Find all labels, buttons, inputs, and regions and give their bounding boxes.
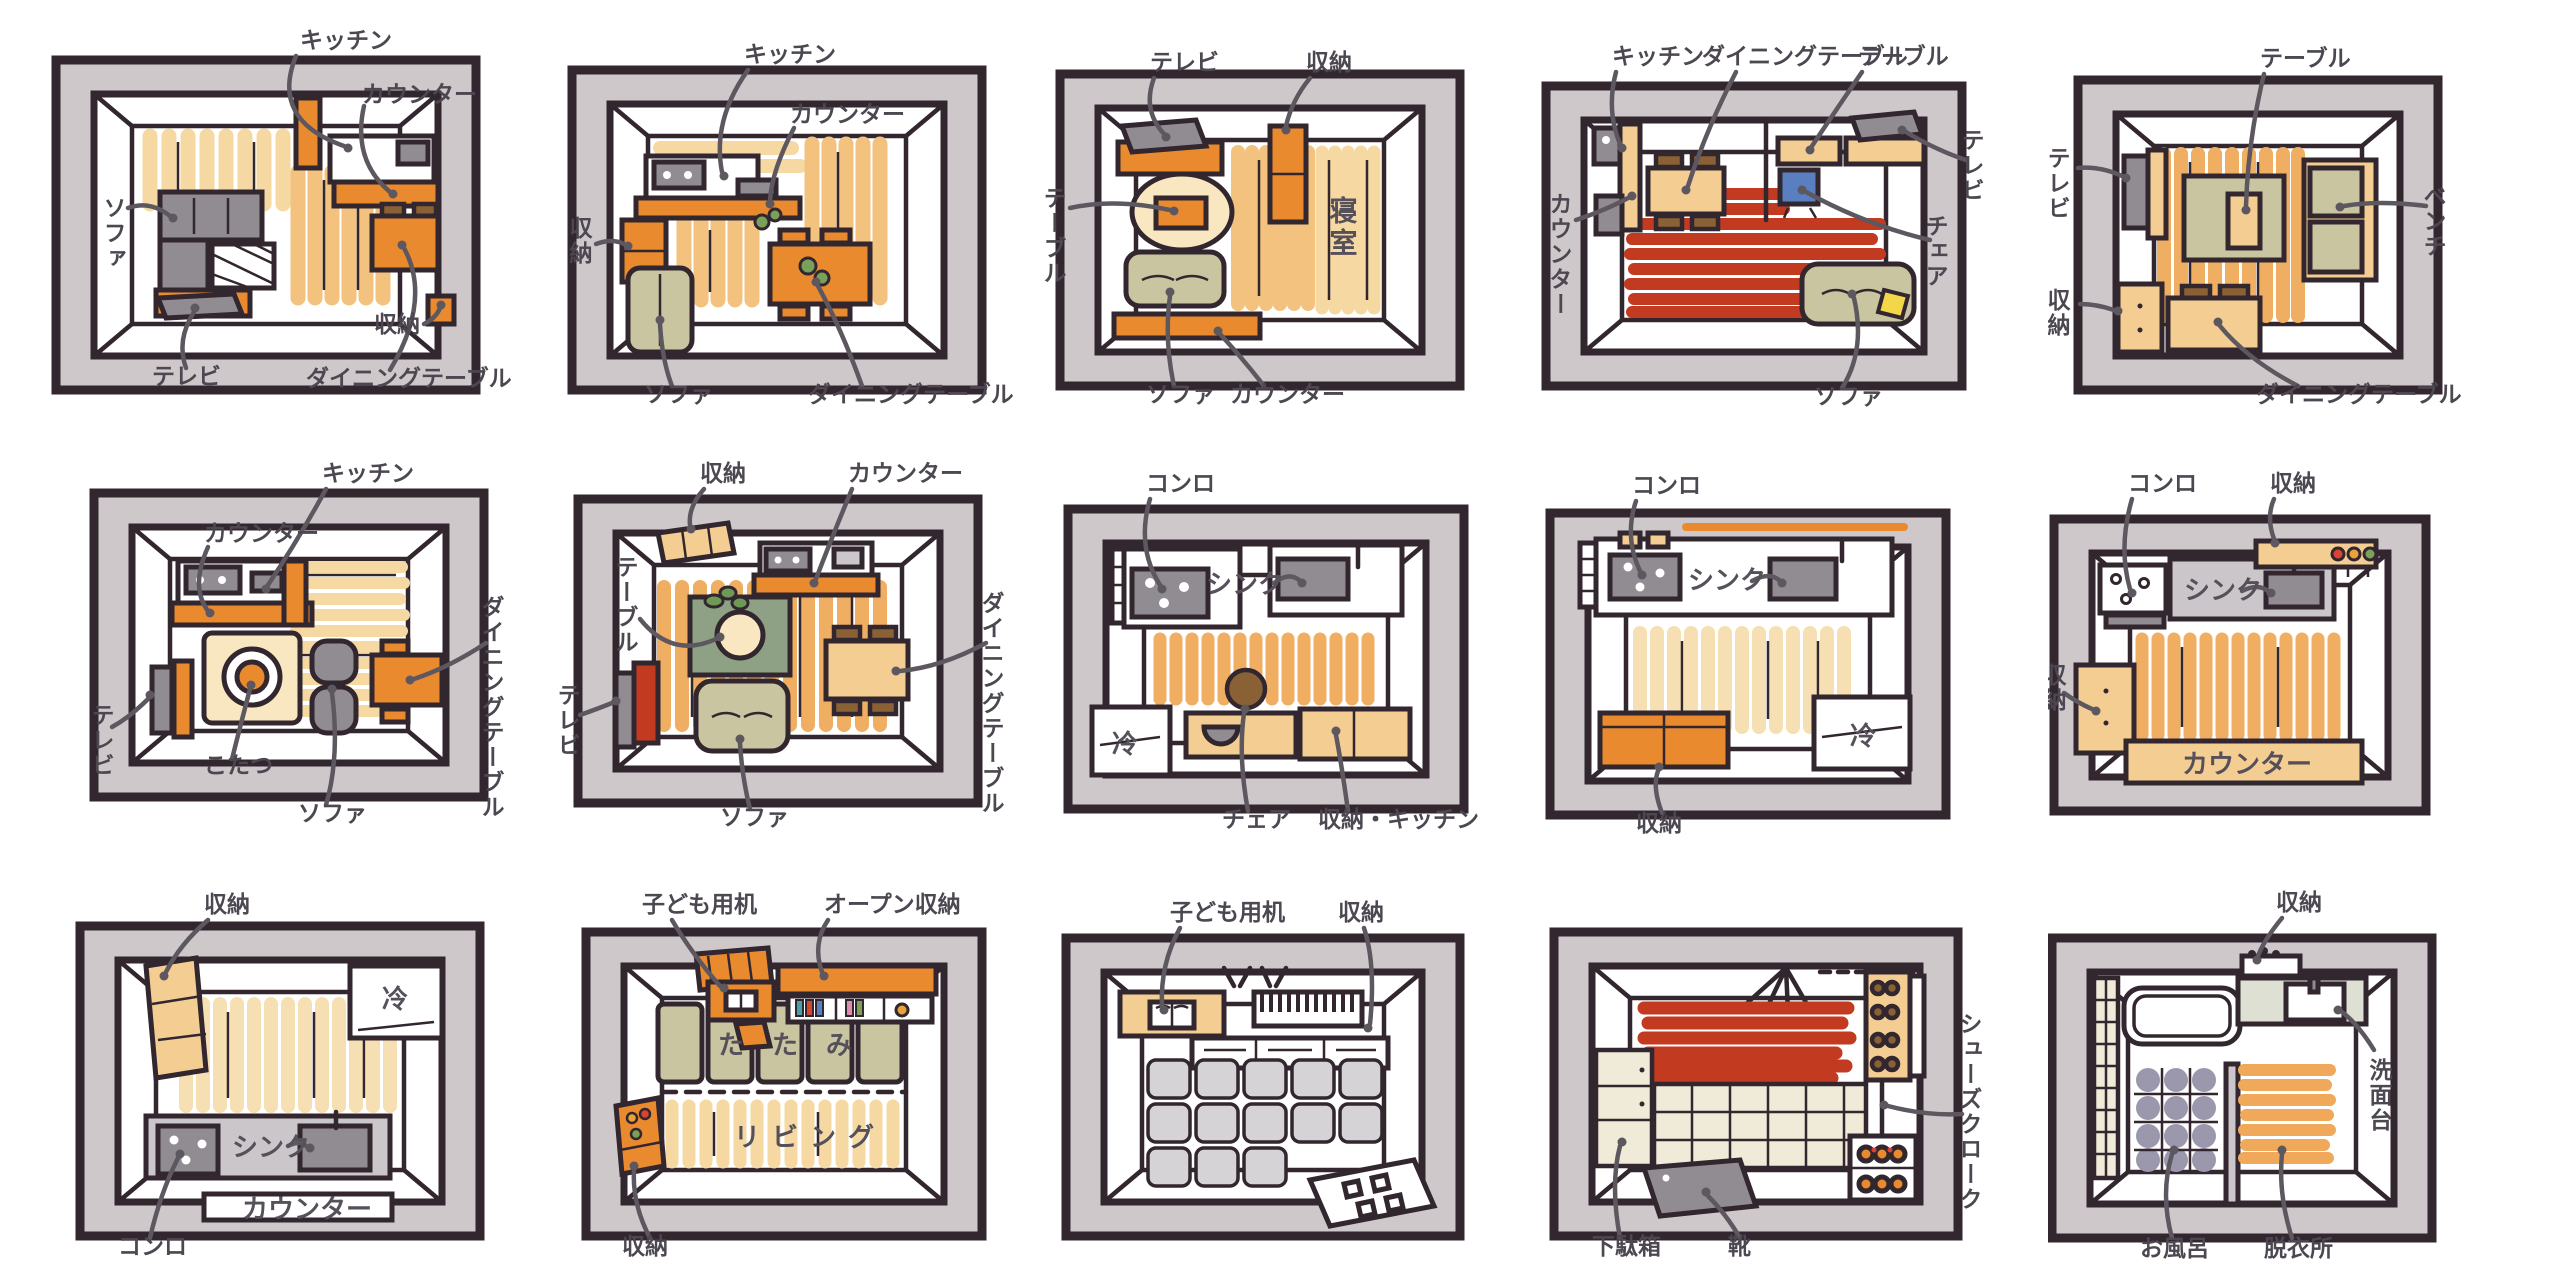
floorplan-panel-7: 収納 カウンター テーブル テレビ ソファ ダイニングテーブル [512,427,1024,854]
floorplan-illustration: キッチン カウンター ソファ テレビ 収納 ダイニングテーブル [0,0,2560,1280]
panel-kotatsu-living: キッチン カウンター テレビ こたつ ソファ ダイニングテーブル [0,427,512,854]
label-dining-table: ダイニングテーブル [808,381,1014,408]
label-storage: 収納 [700,460,746,487]
label-tv: テレビ [553,683,579,758]
label-chair: チェア [1222,807,1291,833]
panel-kids-tatami-living: 子ども用机 オープン収納 たたみ リビング 収納 [512,854,1024,1280]
label-kids-desk: 子ども用机 [1170,900,1285,926]
rug [212,244,274,288]
label-sink: シンク [232,1133,310,1163]
label-dining-table: ダイニングテーブル [977,591,1004,816]
panel-kids-playroom: 子ども用机 収納 [1024,854,1536,1280]
panel-bedroom-living: テレビ 収納 テーブル 寝室 ソファ カウンター [1024,0,1536,427]
label-storage: 収納 [2048,288,2071,338]
kitchen-counter [754,543,878,595]
floorplan-panel-9: コンロ シンク 冷 収納 [1536,427,2048,854]
label-counter: カウンター [2182,750,2312,780]
dining-table [2168,286,2260,350]
shoe-cabinet [1596,1050,1652,1166]
floorplan-grid: キッチン カウンター ソファ テレビ 収納 ダイニングテーブル [0,0,2560,1280]
tv-board [152,661,192,737]
label-dressing-room: 脱衣所 [2264,1235,2333,1262]
label-sofa: ソファ [1146,382,1215,408]
tile-wall [2094,978,2118,1178]
label-stove: コンロ [118,1234,187,1260]
label-sofa: ソファ [298,801,367,827]
tataki [1644,1160,1756,1216]
label-kitchen: キッチン [322,461,414,487]
dining-table [770,230,870,319]
bath-mat-planks [2244,1070,2330,1158]
floorplan-panel-10: コンロ 収納 シンク 収納 カウンター [2048,427,2560,854]
panel-kitchen-fridge: 収納 冷 シンク カウンター コンロ [0,854,512,1280]
kids-desk [1120,992,1224,1036]
table-rug [690,587,790,675]
label-storage: 収納 [1306,49,1352,76]
label-table: テーブル [1039,186,1066,286]
label-sofa: ソファ [720,805,789,831]
tv-board [2124,150,2166,238]
label-table: テーブル [1858,43,1949,70]
floorplan-panel-14: シューズクローク 下駄箱 靴 [1536,854,2048,1280]
counter [1114,314,1260,338]
label-counter: カウンター [848,461,963,487]
label-tv: テレビ [1150,50,1219,76]
floor-planks [2142,639,2334,735]
sink-counter [1270,545,1402,615]
label-shoes-cloak: シューズクローク [1955,1012,1982,1212]
label-kitchen: キッチン [744,42,836,68]
label-sofa: ソファ [644,382,713,408]
red-rug [1644,1008,1850,1078]
storage-cabinet [1270,126,1306,222]
label-shoes: 靴 [1728,1234,1751,1260]
label-counter: カウンター [1230,382,1345,408]
floorplan-panel-4: キッチン ダイニングテーブル テーブル カウンター テレビ チェア ソファ [1536,0,2048,427]
label-fridge: 冷 [382,984,408,1015]
label-washstand: 洗面台 [2365,1058,2393,1133]
label-storage: 収納 [204,891,250,918]
floorplan-panel-5: テーブル ベンチ テレビ 収納 ダイニングテーブル [2048,0,2560,427]
label-tv: テレビ [2048,146,2069,221]
kitchen-counter [172,561,312,625]
room-text-living: リビング [734,1123,886,1153]
label-stove: コンロ [1632,473,1701,499]
label-table: テーブル [2260,45,2351,72]
floorplan-panel-3: テレビ 収納 テーブル 寝室 ソファ カウンター [1024,0,1536,427]
kotatsu [204,633,300,723]
panel-living-dining-2: キッチン カウンター 収納 ソファ ダイニングテーブル [512,0,1024,427]
label-dining-table: ダイニングテーブル [306,365,512,392]
label-sink: シンク [2184,576,2262,606]
floorplan-panel-15: 収納 洗面台 お風呂 脱衣所 [2048,854,2560,1280]
label-storage-kitchen: 収納・キッチン [1318,806,1479,833]
label-counter: カウンター [1545,192,1572,317]
table-rug [1132,174,1232,250]
label-tv: テレビ [152,364,221,390]
label-sink: シンク [1206,570,1284,600]
panel-bathroom: 収納 洗面台 お風呂 脱衣所 [2048,854,2560,1280]
room-text-tatami: たたみ [718,1031,880,1061]
label-stove: コンロ [2128,471,2197,497]
floorplan-panel-11: 収納 冷 シンク カウンター コンロ [0,854,512,1280]
floorplan-panel-2: キッチン カウンター 収納 ソファ ダイニングテーブル [512,0,1024,427]
panel-living-dining-red-rug: キッチン ダイニングテーブル テーブル カウンター テレビ チェア ソファ [1536,0,2048,427]
label-storage: 収納 [2276,889,2322,916]
label-kotatsu: こたつ [204,753,273,779]
room-text-bedroom: 寝室 [1326,195,1359,260]
label-counter: カウンター [204,521,319,547]
label-counter: カウンター [362,82,477,108]
label-counter: カウンター [790,102,905,128]
label-tv: テレビ [1957,128,1983,203]
bench-storage [1186,709,1410,759]
storage-cabinet [1600,713,1728,767]
panel-kitchen-galley-2: コンロ シンク 冷 収納 [1536,427,2048,854]
tv-board [156,290,250,318]
label-kitchen: キッチン [1612,44,1704,70]
label-storage: 収納 [622,1233,668,1260]
bench [2304,160,2376,280]
storage-cabinet [2118,284,2162,352]
label-tv: テレビ [87,703,113,778]
label-kitchen: キッチン [300,28,392,54]
label-chair: チェア [1921,214,1947,289]
floorplan-panel-1: キッチン カウンター ソファ テレビ 収納 ダイニングテーブル [0,0,512,427]
label-stove: コンロ [1146,471,1215,497]
panel-kitchen-galley-1: コンロ シンク 冷 チェア 収納・キッチン [1024,427,1536,854]
label-open-storage: オープン収納 [824,891,961,918]
tile-floor [1654,1084,1866,1168]
panel-living-dining-green-rug: 収納 カウンター テーブル テレビ ソファ ダイニングテーブル [512,427,1024,854]
bathtub [2124,988,2240,1044]
floorplan-panel-13: 子ども用机 収納 [1024,854,1536,1280]
storage-shelf [658,523,734,563]
label-storage: 収納 [565,216,593,266]
floorplan-panel-12: 子ども用机 オープン収納 たたみ リビング 収納 [512,854,1024,1280]
label-storage: 収納 [374,311,420,338]
panel-kitchen-counter: コンロ 収納 シンク 収納 カウンター [2048,427,2560,854]
open-storage-shelf [778,966,936,1022]
floorplan-panel-8: コンロ シンク 冷 チェア 収納・キッチン [1024,427,1536,854]
storage-shelf-left [616,1098,664,1174]
label-sink: シンク [1688,566,1766,596]
label-bench: ベンチ [2419,184,2447,259]
label-storage: 収納 [1338,899,1384,926]
sofa [1126,252,1224,306]
label-storage-left: 収納 [2048,663,2067,713]
label-dining-table: ダイニングテーブル [477,595,504,820]
tv-board [616,663,658,747]
label-table: テーブル [611,555,638,655]
label-dining-table: ダイニングテーブル [2256,381,2462,408]
stool [1227,670,1265,708]
label-sofa: ソファ [99,196,125,271]
label-storage: 収納 [1636,810,1682,837]
label-storage-top: 収納 [2270,470,2316,497]
floorplan-panel-6: キッチン カウンター テレビ こたつ ソファ ダイニングテーブル [0,427,512,854]
shoe-rack [1850,1136,1916,1200]
panel-living-bench: テーブル ベンチ テレビ 収納 ダイニングテーブル [2048,0,2560,427]
label-shoe-cabinet: 下駄箱 [1592,1233,1661,1260]
label-fridge: 冷 [1850,721,1876,752]
label-sofa: ソファ [1814,384,1883,410]
storage-cabinet [146,958,206,1078]
table-rug [2184,176,2284,260]
label-fridge: 冷 [1112,729,1138,760]
label-bath: お風呂 [2140,1236,2209,1262]
label-counter: カウンター [242,1195,372,1225]
shoe-shelf [1866,972,1924,1080]
panel-living-dining-1: キッチン カウンター ソファ テレビ 収納 ダイニングテーブル [0,0,512,427]
panel-entryway: シューズクローク 下駄箱 靴 [1536,854,2048,1280]
divider-wall [2226,1064,2238,1204]
label-kids-desk: 子ども用机 [642,892,757,918]
